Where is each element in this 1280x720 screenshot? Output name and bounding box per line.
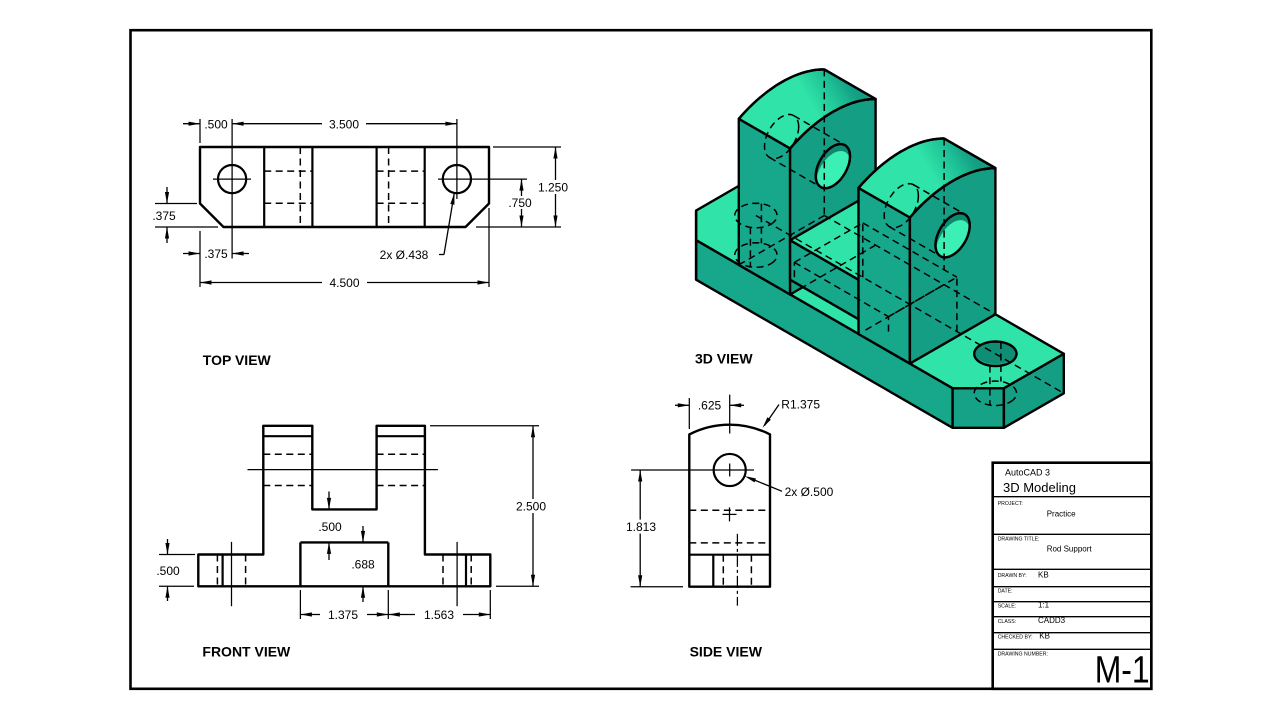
svg-text:1:1: 1:1 (1038, 601, 1050, 610)
svg-text:4.500: 4.500 (329, 276, 359, 290)
svg-text:TOP VIEW: TOP VIEW (203, 352, 272, 368)
svg-text:.625: .625 (698, 398, 722, 412)
svg-text:SIDE VIEW: SIDE VIEW (690, 644, 763, 660)
svg-text:CADD3: CADD3 (1038, 616, 1066, 625)
svg-text:DRAWING TITLE:: DRAWING TITLE: (998, 537, 1040, 543)
svg-text:CLASS:: CLASS: (998, 619, 1016, 625)
svg-text:DRAWN BY:: DRAWN BY: (998, 573, 1027, 579)
svg-text:.500: .500 (204, 117, 228, 131)
svg-text:DATE:: DATE: (998, 589, 1013, 595)
svg-text:.375: .375 (204, 247, 228, 261)
svg-text:2.500: 2.500 (516, 500, 546, 514)
svg-text:FRONT VIEW: FRONT VIEW (202, 644, 291, 660)
svg-text:2x Ø.438: 2x Ø.438 (380, 248, 429, 262)
svg-text:M-1: M-1 (1095, 650, 1150, 692)
svg-text:AutoCAD 3: AutoCAD 3 (1005, 468, 1050, 478)
svg-text:3D Modeling: 3D Modeling (1003, 480, 1076, 495)
svg-text:1.250: 1.250 (538, 181, 568, 195)
svg-text:KB: KB (1039, 632, 1050, 641)
svg-text:2x Ø.500: 2x Ø.500 (785, 485, 834, 499)
svg-text:.500: .500 (156, 564, 180, 578)
svg-text:.375: .375 (152, 209, 176, 223)
svg-text:R1.375: R1.375 (781, 398, 820, 412)
svg-text:KB: KB (1038, 570, 1049, 579)
svg-text:Rod Support: Rod Support (1047, 544, 1093, 553)
svg-text:.750: .750 (508, 196, 532, 210)
svg-text:.500: .500 (318, 520, 342, 534)
svg-text:1.563: 1.563 (424, 608, 454, 622)
svg-text:3.500: 3.500 (329, 117, 359, 131)
svg-text:PROJECT:: PROJECT: (998, 501, 1023, 507)
svg-text:1.375: 1.375 (328, 608, 358, 622)
svg-text:1.813: 1.813 (626, 520, 656, 534)
svg-text:Practice: Practice (1047, 510, 1076, 519)
svg-text:CHECKED BY:: CHECKED BY: (998, 635, 1033, 641)
svg-text:SCALE:: SCALE: (998, 604, 1016, 610)
svg-text:.688: .688 (351, 558, 375, 572)
svg-text:3D VIEW: 3D VIEW (695, 351, 753, 367)
svg-text:DRAWING NUMBER:: DRAWING NUMBER: (998, 652, 1048, 658)
